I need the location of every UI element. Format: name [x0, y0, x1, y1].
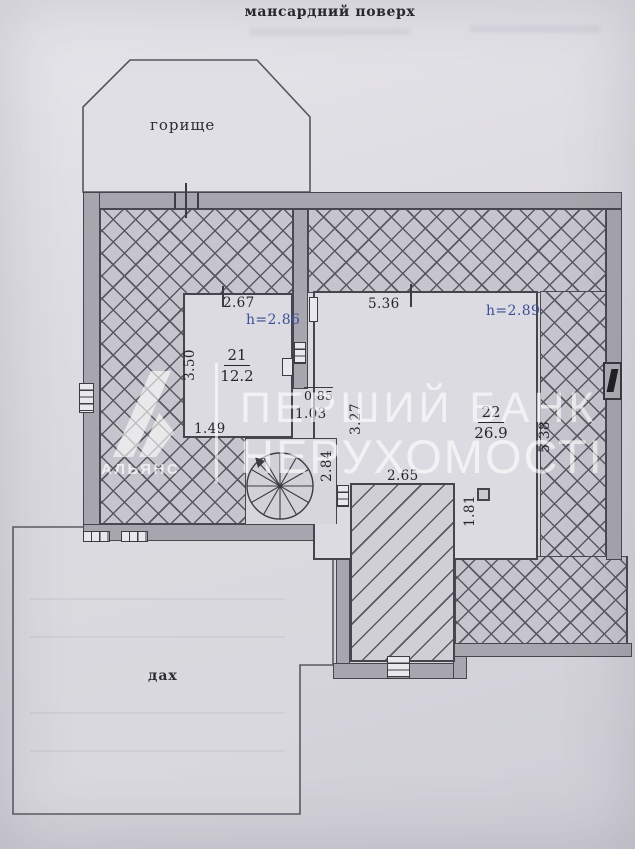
dim-room22-depth: 5.38 [537, 419, 553, 455]
chimney-mark [185, 183, 187, 218]
dim-terrace-width: 2.65 [387, 468, 419, 484]
radiator-symbol [337, 485, 349, 507]
dim-room22-width: 5.36 [368, 296, 400, 312]
room-22-label: 22 26.9 [468, 403, 514, 442]
room-22-number: 22 [478, 403, 503, 423]
wall-bottom-right [453, 643, 632, 657]
bleed-through-line [30, 712, 285, 714]
dim-terrace-depth: 1.81 [462, 493, 478, 529]
steps-symbol [387, 656, 410, 679]
page-title: мансардний поверх [25, 4, 635, 20]
wall-joint-tick [197, 192, 199, 209]
bleed-through-line [30, 636, 285, 638]
room-22-area: 26.9 [468, 423, 514, 442]
room-21-number: 21 [224, 346, 249, 366]
radiator-symbol [83, 531, 110, 542]
terrace-hatched-room [350, 483, 455, 662]
wall-joint-tick [174, 192, 176, 209]
bleed-through-smudge [470, 26, 600, 32]
dim-stairwell: 2.84 [319, 448, 335, 484]
column-symbol [477, 488, 490, 501]
wall-top [83, 192, 622, 209]
room-21-label: 21 12.2 [214, 346, 260, 385]
dimension-tick [410, 284, 412, 307]
spiral-staircase-icon [245, 451, 315, 521]
door-jamb-symbol [309, 297, 318, 322]
hatch-zone-top [308, 209, 606, 293]
dim-room22-height: h=2.89 [486, 303, 540, 319]
bleed-through-line [30, 750, 285, 752]
wall-stub-symbol [282, 358, 293, 376]
attic-label: горище [150, 116, 215, 134]
dim-room21-depth: 3.50 [182, 347, 198, 383]
dim-room21-width: 2.67 [223, 295, 255, 311]
window-symbol [79, 383, 94, 413]
radiator-symbol [294, 342, 306, 364]
dim-mid-wall: 3.27 [348, 401, 364, 437]
bleed-through-line [30, 598, 285, 600]
dim-room21-height: h=2.86 [246, 312, 300, 328]
scanned-floor-plan-page: мансардний поверх горище дах [0, 0, 635, 849]
hatch-zone-bottom-right [455, 556, 628, 644]
radiator-symbol [121, 531, 148, 542]
room-21-area: 12.2 [214, 366, 260, 385]
bleed-through-smudge [250, 29, 410, 35]
roof-label: дах [148, 668, 178, 684]
dim-door: 0.85 [304, 387, 333, 403]
dim-passage: 1.03 [295, 406, 327, 422]
dim-room21-niche: 1.49 [194, 421, 226, 437]
flue-symbol [603, 362, 622, 400]
wall-left [83, 192, 100, 541]
